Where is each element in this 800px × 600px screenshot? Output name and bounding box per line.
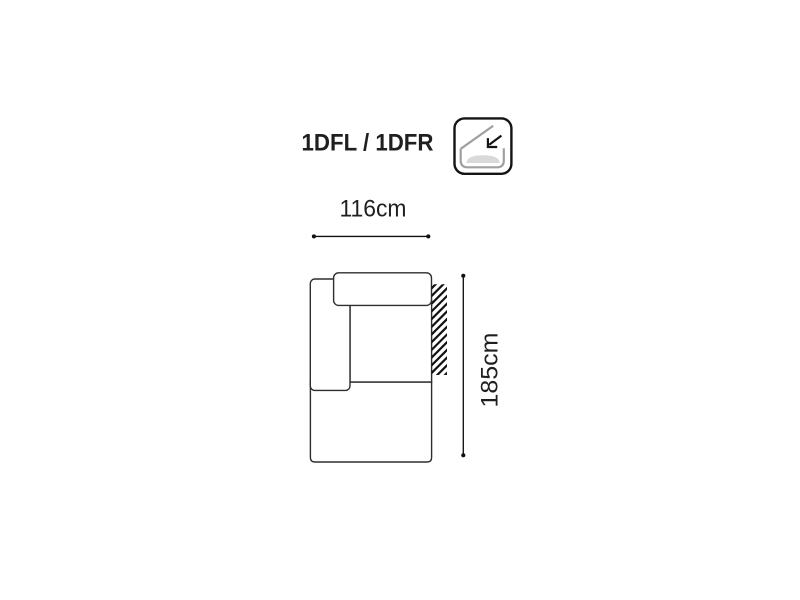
svg-text:185cm: 185cm — [476, 333, 503, 408]
svg-text:1DFL / 1DFR: 1DFL / 1DFR — [302, 129, 434, 156]
svg-text:116cm: 116cm — [340, 195, 407, 222]
